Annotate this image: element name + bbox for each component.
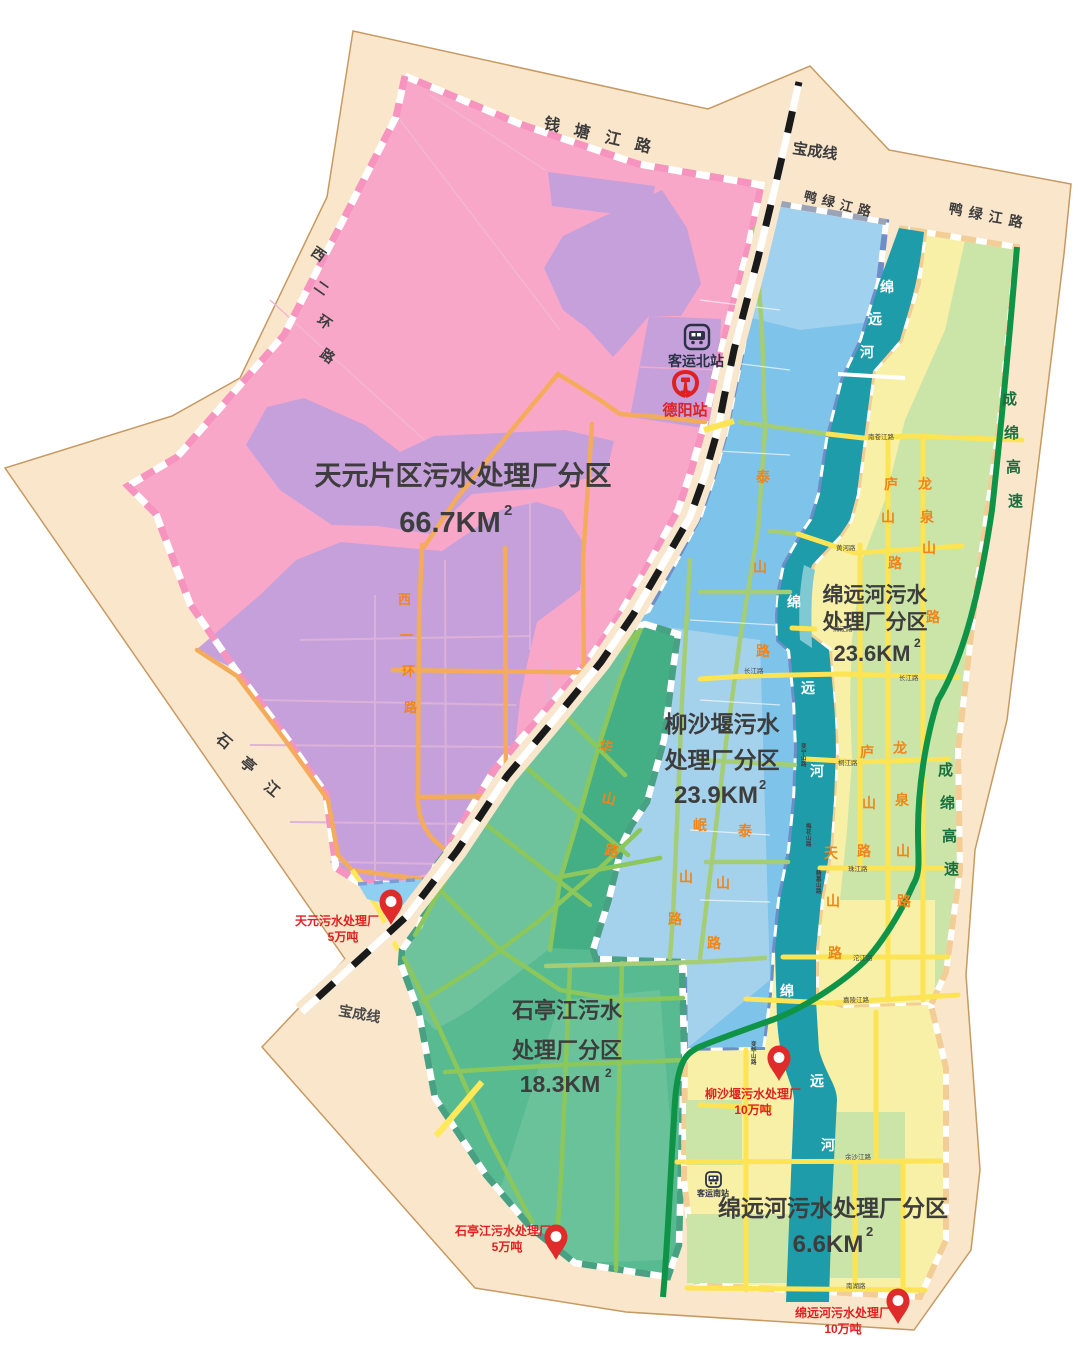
svg-text:嘉陵江路: 嘉陵江路 <box>843 995 870 1004</box>
svg-text:山: 山 <box>816 881 822 889</box>
svg-text:泰: 泰 <box>737 823 753 839</box>
svg-text:2: 2 <box>914 636 921 650</box>
svg-text:客运北站: 客运北站 <box>667 353 724 369</box>
svg-text:23.9KM: 23.9KM <box>674 782 758 809</box>
svg-text:山: 山 <box>679 869 693 885</box>
svg-text:绵: 绵 <box>940 794 955 812</box>
svg-text:10万吨: 10万吨 <box>824 1321 861 1336</box>
svg-text:远: 远 <box>801 680 815 696</box>
svg-text:山: 山 <box>922 540 936 556</box>
svg-text:长江路: 长江路 <box>744 666 764 675</box>
svg-text:路: 路 <box>888 555 903 571</box>
svg-text:德阳站: 德阳站 <box>662 401 707 419</box>
svg-text:23.6KM: 23.6KM <box>833 641 910 666</box>
svg-text:河: 河 <box>810 763 824 779</box>
svg-text:山: 山 <box>862 795 876 811</box>
svg-text:庐: 庐 <box>860 744 874 760</box>
svg-text:华: 华 <box>751 1046 757 1054</box>
svg-text:18.3KM: 18.3KM <box>520 1071 601 1097</box>
svg-text:远: 远 <box>868 311 882 327</box>
svg-text:环: 环 <box>402 664 415 679</box>
svg-text:远: 远 <box>810 1073 824 1089</box>
svg-text:山: 山 <box>801 754 807 762</box>
svg-text:路: 路 <box>926 609 941 625</box>
svg-text:山: 山 <box>751 1052 757 1060</box>
svg-text:精: 精 <box>816 869 822 877</box>
svg-text:处理厂分区: 处理厂分区 <box>664 747 780 773</box>
svg-text:桐江路: 桐江路 <box>838 758 858 767</box>
svg-text:2: 2 <box>759 777 766 792</box>
svg-text:绵: 绵 <box>780 983 794 999</box>
svg-text:绵: 绵 <box>787 594 801 610</box>
svg-text:2: 2 <box>866 1224 873 1239</box>
svg-text:黄河路: 黄河路 <box>836 543 856 552</box>
svg-text:路: 路 <box>801 760 807 768</box>
svg-text:宁: 宁 <box>801 748 807 756</box>
svg-text:山: 山 <box>896 843 910 859</box>
svg-text:岷: 岷 <box>693 817 707 833</box>
svg-text:绵远河污水: 绵远河污水 <box>823 583 929 607</box>
svg-text:路: 路 <box>828 945 843 961</box>
svg-text:山: 山 <box>826 893 840 909</box>
svg-text:南苍江路: 南苍江路 <box>868 432 895 441</box>
svg-text:花: 花 <box>806 828 812 836</box>
svg-text:庐: 庐 <box>884 476 898 492</box>
svg-text:一: 一 <box>400 628 413 643</box>
svg-text:泉: 泉 <box>895 792 910 808</box>
svg-text:柳沙堰污水处理厂: 柳沙堰污水处理厂 <box>705 1086 801 1101</box>
svg-text:处理厂分区: 处理厂分区 <box>511 1038 622 1063</box>
svg-text:河: 河 <box>821 1137 835 1153</box>
svg-text:鸭: 鸭 <box>947 200 964 218</box>
svg-text:2: 2 <box>504 502 512 519</box>
svg-text:客运南站: 客运南站 <box>696 1188 729 1198</box>
svg-text:墓: 墓 <box>815 875 822 883</box>
svg-text:成: 成 <box>938 761 953 779</box>
svg-text:路: 路 <box>751 1058 757 1066</box>
svg-text:5万吨: 5万吨 <box>328 929 359 944</box>
svg-text:路: 路 <box>806 840 812 848</box>
svg-text:龙: 龙 <box>892 740 907 756</box>
svg-text:天: 天 <box>824 845 839 861</box>
svg-text:路: 路 <box>404 700 418 715</box>
svg-text:高: 高 <box>1006 458 1021 476</box>
svg-text:6.6KM: 6.6KM <box>793 1231 864 1258</box>
svg-text:梅: 梅 <box>806 822 812 830</box>
svg-text:路: 路 <box>857 843 872 859</box>
svg-text:余沙江路: 余沙江路 <box>845 1152 872 1161</box>
svg-text:路: 路 <box>897 893 912 909</box>
svg-text:山: 山 <box>716 875 730 891</box>
svg-text:5万吨: 5万吨 <box>492 1239 523 1254</box>
svg-text:变: 变 <box>751 1040 757 1048</box>
svg-text:路: 路 <box>668 911 683 927</box>
svg-text:江: 江 <box>987 208 1004 226</box>
svg-text:长江路: 长江路 <box>899 673 919 682</box>
svg-text:变: 变 <box>801 742 807 750</box>
svg-text:南湖路: 南湖路 <box>846 1281 866 1290</box>
svg-text:成: 成 <box>1002 390 1017 408</box>
svg-text:绵: 绵 <box>1004 424 1019 442</box>
svg-text:山: 山 <box>753 559 767 575</box>
svg-text:速: 速 <box>1008 492 1023 510</box>
svg-text:66.7KM: 66.7KM <box>399 507 501 539</box>
svg-text:绵远河污水处理厂分区: 绵远河污水处理厂分区 <box>718 1195 948 1221</box>
svg-text:石亭江污水: 石亭江污水 <box>511 998 623 1023</box>
svg-text:天元污水处理厂: 天元污水处理厂 <box>295 913 379 928</box>
svg-text:高: 高 <box>942 827 957 845</box>
svg-text:路: 路 <box>707 935 722 951</box>
svg-text:绵远河污水处理厂: 绵远河污水处理厂 <box>795 1305 891 1320</box>
svg-text:绵: 绵 <box>880 279 894 295</box>
svg-text:山: 山 <box>881 509 895 525</box>
svg-text:龙: 龙 <box>917 476 932 492</box>
svg-text:河: 河 <box>860 344 874 360</box>
svg-text:珠江路: 珠江路 <box>848 864 868 873</box>
svg-text:速: 速 <box>944 860 959 878</box>
svg-text:10万吨: 10万吨 <box>734 1102 771 1117</box>
svg-text:西: 西 <box>398 592 411 607</box>
svg-text:路: 路 <box>756 643 771 659</box>
svg-text:洲江路: 洲江路 <box>833 624 853 633</box>
svg-text:泉: 泉 <box>920 509 935 525</box>
svg-text:山: 山 <box>806 834 812 842</box>
svg-text:路: 路 <box>816 887 822 895</box>
svg-text:泰: 泰 <box>755 469 771 485</box>
svg-text:2: 2 <box>605 1066 612 1080</box>
svg-text:柳沙堰污水: 柳沙堰污水 <box>665 711 781 737</box>
svg-text:沱江路: 沱江路 <box>853 953 873 962</box>
svg-text:天元片区污水处理厂分区: 天元片区污水处理厂分区 <box>315 461 612 491</box>
svg-text:石亭江污水处理厂: 石亭江污水处理厂 <box>454 1223 551 1238</box>
